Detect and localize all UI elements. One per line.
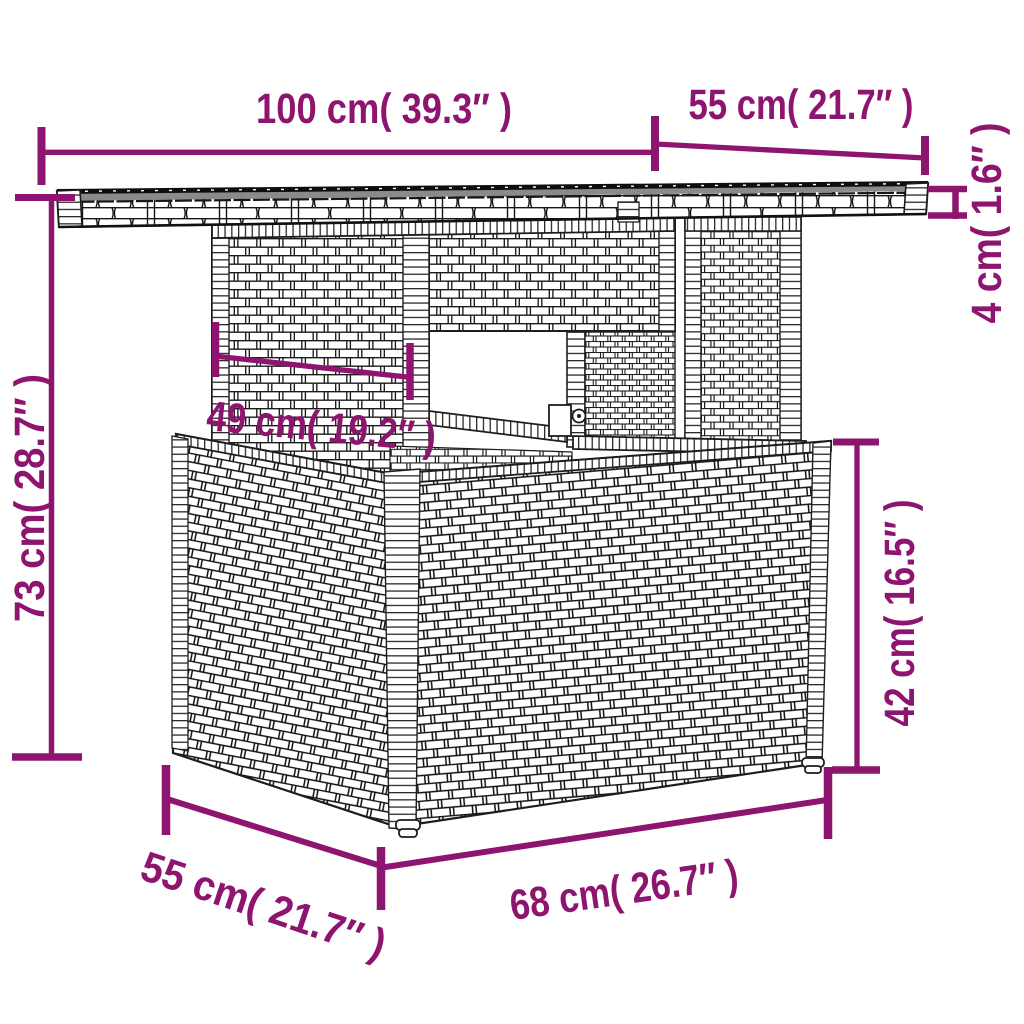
svg-text:42 cm( 16.5″ ): 42 cm( 16.5″ ) [877,500,924,727]
svg-text:4 cm( 1.6″ ): 4 cm( 1.6″ ) [964,123,1011,324]
svg-text:100 cm( 39.3″ ): 100 cm( 39.3″ ) [256,86,512,133]
svg-text:55 cm( 21.7″ ): 55 cm( 21.7″ ) [689,82,914,129]
svg-text:73 cm( 28.7″ ): 73 cm( 28.7″ ) [7,374,54,622]
